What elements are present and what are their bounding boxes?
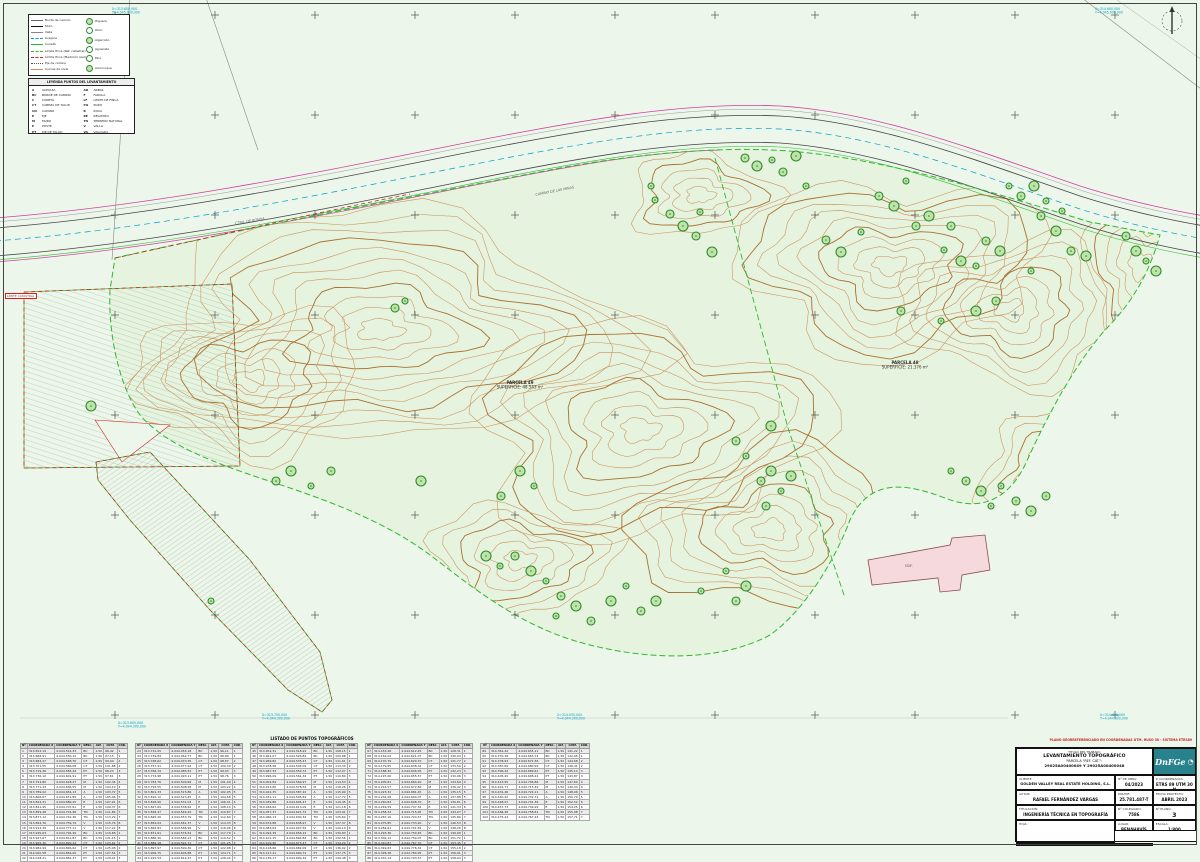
plan-number: 3 <box>1156 812 1193 819</box>
table-cell: 136,42 <box>449 784 463 789</box>
legend-line-label: Valla <box>45 31 52 34</box>
table-cell: 110,80 <box>334 774 348 779</box>
tree-symbol <box>822 236 830 244</box>
table-row: 72314.197,064.044.655,57PT1,50130,963 <box>366 774 473 779</box>
table-row: 82314.284,614.044.741,82V1,50148,268 <box>366 825 473 830</box>
tree-symbol <box>1042 492 1050 500</box>
table-row: 84314.302,124.044.759,07BC1,50151,721 <box>366 835 473 840</box>
table-cell: 157,71 <box>566 815 580 820</box>
legend-tree-label: Pino <box>95 57 101 60</box>
location-name: BENAHAVÍS <box>1118 827 1150 832</box>
coordinate-label: X=313.750,000Y=4.044.300,000 <box>262 713 290 721</box>
table-cell: 148,26 <box>449 825 463 830</box>
table-cell: 121,18 <box>334 805 348 810</box>
coordinate-system-cell: P. COORDENADAS: ETRS 89 UTM 30 N <box>1153 775 1196 790</box>
table-cell: 114,53 <box>334 779 348 784</box>
table-cell: 122,98 <box>219 846 233 851</box>
table-row: 42313.897,974.044.599,30CT1,50122,982 <box>136 846 243 851</box>
tree-symbol <box>497 563 503 569</box>
table-row: 41313.889,184.044.591,71CT1,50121,252 <box>136 841 243 846</box>
table-cell: 119,45 <box>334 800 348 805</box>
table-cell: 132,23 <box>449 769 463 774</box>
table-cell: 155,98 <box>566 810 580 815</box>
table-cell: 4.044.614,47 <box>170 856 197 861</box>
work-number-cell: Nº DE OBRA: 04/2023 <box>1115 775 1153 790</box>
tree-symbol <box>752 161 762 171</box>
tree-symbol <box>1151 266 1161 276</box>
table-row: 44313.915,544.044.614,47PT1,50126,443 <box>136 856 243 861</box>
point-table-header: CÓD. <box>579 744 590 749</box>
table-row: 18313.947,674.044.811,87BC1,50121,151 <box>21 835 128 840</box>
table-row: 96314.422,714.044.715,49M1,50149,334 <box>481 784 590 789</box>
tree-symbol <box>1017 192 1025 200</box>
tree-symbol <box>208 598 214 604</box>
client-cell: CLIENTE: GOLDEN VALLEY REAL ESTATE HOLDI… <box>1016 775 1115 790</box>
sheet-number-cell: HOJA: <box>1016 820 1115 843</box>
degree-name: INGENIERÍA TÉCNICA EN TOPOGRAFÍA <box>1019 812 1112 817</box>
table-cell: 134,69 <box>449 779 463 784</box>
table-row: 68314.162,044.044.621,07BC1,50130,041 <box>366 753 473 758</box>
company-logo: DnFGe ◔ <box>1153 748 1196 775</box>
point-table-header: DESC. <box>197 744 209 749</box>
tree-symbol <box>648 183 654 189</box>
table-cell: 130,04 <box>449 753 463 758</box>
table-row: 14313.877,124.044.742,36TN1,50113,297 <box>21 815 128 820</box>
table-cell: 105,46 <box>104 794 118 799</box>
table-row: 88314.337,144.044.793,57PT1,50158,643 <box>366 856 473 861</box>
table-cell: 145,80 <box>449 815 463 820</box>
tree-symbol <box>1037 212 1045 220</box>
point-table-header: CÓD. <box>462 744 473 749</box>
legend-line-label: Cuneta <box>45 43 56 46</box>
coordinate-label: X=314.600,000Y=4.045.000,000 <box>1095 7 1123 15</box>
table-row: 64314.118,664.044.682,09CT1,50136,022 <box>251 846 358 851</box>
point-table-header: COORDENADA Y <box>170 744 197 749</box>
table-cell: 119,68 <box>104 830 118 835</box>
table-cell: 111,61 <box>334 759 348 764</box>
fence-line-sample <box>31 32 43 33</box>
tree-symbol <box>543 578 549 584</box>
table-row: 102314.475,244.044.767,24TN1,50157,717 <box>481 815 590 820</box>
table-cell: 109,37 <box>104 805 118 810</box>
table-row: 62314.101,154.044.664,84BC1,50132,561 <box>251 835 358 840</box>
table-row: 51314.004,844.044.569,97M1,50114,534 <box>251 779 358 784</box>
table-row: 15313.894,764.044.759,74V1,50115,768 <box>21 820 128 825</box>
table-row: 20313.982,944.044.846,62CT1,50125,082 <box>21 846 128 851</box>
tree-symbol <box>698 588 704 594</box>
table-cell: 132,56 <box>334 835 348 840</box>
abbrev-item: PTPIE DE TALUD <box>32 130 80 135</box>
table-cell: 101,49 <box>219 779 233 784</box>
abbreviations-grid: AACEQUIAARÁRBOLBCBORDE DE CAMINOFFAROLAC… <box>29 86 134 136</box>
tree-symbol <box>1026 506 1036 516</box>
tree-symbol <box>769 157 775 163</box>
table-cell: TN <box>544 815 556 820</box>
table-row: 8313.771,434.044.636,55M1,50104,194 <box>21 784 128 789</box>
table-cell: 110,87 <box>219 810 233 815</box>
cadastral-limit-note: LÍMITE CATASTRAL <box>5 293 37 299</box>
table-cell: 129,01 <box>104 856 118 861</box>
table-cell: 121,25 <box>219 841 233 846</box>
table-row: 48313.978,584.044.544,09CT1,50113,342 <box>251 764 358 769</box>
table-cell: 148,06 <box>566 789 580 794</box>
tree-symbol <box>707 247 717 257</box>
tree-symbol <box>962 477 970 485</box>
tree-symbol <box>606 596 616 606</box>
legend-line-item: Eje de camino <box>31 62 86 65</box>
dni-value: 25.781.487-T <box>1118 797 1150 802</box>
tree-symbol <box>971 306 981 316</box>
table-cell: 117,72 <box>334 794 348 799</box>
table-cell: 314.475,24 <box>489 815 516 820</box>
wall-line-sample <box>31 26 43 27</box>
table-row: 70314.179,554.044.638,32CT1,50133,502 <box>366 764 473 769</box>
point-table: NºCOORDENADA XCOORDENADA YDESC.ALT.COTAC… <box>365 743 473 862</box>
abbrev-item: VAVAGUADA <box>84 130 132 135</box>
tree-symbol <box>858 229 864 235</box>
table-row: 13313.859,484.044.724,98TN1,50111,847 <box>21 810 128 815</box>
point-table-header: COORDENADA Y <box>285 744 312 749</box>
legend-line-label: Acequia <box>45 37 57 40</box>
table-row: 30313.792,554.044.508,28M1,50103,224 <box>136 784 243 789</box>
legend-tree-label: Aguacate <box>95 48 109 51</box>
table-cell: 114,33 <box>219 820 233 825</box>
table-cell: 124,71 <box>219 851 233 856</box>
abbreviations-box: LEYENDA PUNTOS DEL LEVANTAMIENTO AACEQUI… <box>28 78 135 134</box>
table-row: 3313.684,274.044.548,76CT1,5099,042 <box>21 759 128 764</box>
table-row: 98314.440,224.044.732,74A1,50150,795 <box>481 794 590 799</box>
table-cell: 143,87 <box>566 774 580 779</box>
legend-box: Borde de caminoMuroVallaAcequiaCunetaLím… <box>28 14 130 76</box>
point-table: NºCOORDENADA XCOORDENADA YDESC.ALT.COTAC… <box>135 743 243 862</box>
project-date: ABRIL 2023 <box>1156 797 1193 802</box>
table-row: 47313.969,824.044.535,47CT1,50111,612 <box>251 759 358 764</box>
legend-line-item: Muro <box>31 25 86 28</box>
point-table-header: DESC. <box>82 744 94 749</box>
tree-symbol <box>803 183 809 189</box>
table-cell: 3 <box>347 856 358 861</box>
table-cell: 126,44 <box>219 856 233 861</box>
table-row: 16313.912,394.044.777,11V1,50117,228 <box>21 825 128 830</box>
scale-cell: ESCALA: 1:800 <box>1153 820 1196 831</box>
table-cell: 121,15 <box>104 835 118 840</box>
tree-symbol <box>924 211 934 221</box>
table-row: 52314.013,604.044.578,59M1,50116,264 <box>251 784 358 789</box>
coordinate-label: X=313.600,000Y=4.044.300,000 <box>118 721 146 729</box>
point-table-header: COORDENADA X <box>489 744 516 749</box>
tree-symbol <box>1122 232 1130 240</box>
author-name: RAFAEL FERNÁNDEZ VARGAS <box>1019 797 1112 802</box>
table-row: 17313.930,034.044.794,49BC1,50119,681 <box>21 830 128 835</box>
tree-symbol <box>779 168 787 176</box>
table-cell: 141,22 <box>566 748 580 753</box>
table-cell: 156,91 <box>449 851 463 856</box>
table-row: 76314.232,084.044.690,07A1,50137,885 <box>366 794 473 799</box>
table-cell: 116,06 <box>219 825 233 830</box>
table-cell: 88 <box>366 856 373 861</box>
tree-symbol <box>743 453 749 459</box>
table-row: 22314.018,214.044.881,37PT1,50129,013 <box>21 856 128 861</box>
table-cell: 127,54 <box>104 851 118 856</box>
table-row: 27313.766,194.044.485,52PT1,5099,033 <box>136 769 243 774</box>
table-cell: 108,15 <box>334 748 348 753</box>
tree-symbol <box>652 197 658 203</box>
tree-symbol <box>889 201 899 211</box>
coordinate-label: X=314.600,000Y=4.044.300,000 <box>1100 713 1128 721</box>
legend-tree-item: Algarrobo <box>86 37 127 44</box>
table-cell: 150,79 <box>566 794 580 799</box>
table-cell: 106,41 <box>219 800 233 805</box>
table-row: 25313.748,624.044.470,35CT1,5098,572 <box>136 759 243 764</box>
tree-symbol <box>651 596 661 606</box>
road-line-sample <box>31 20 43 21</box>
table-cell: 3 <box>462 856 473 861</box>
point-table-header: CÓD. <box>347 744 358 749</box>
table-cell: 147,60 <box>566 779 580 784</box>
tree-symbol <box>286 466 296 476</box>
scale-value: 1:800 <box>1156 827 1193 832</box>
table-cell: 131,77 <box>449 759 463 764</box>
table-row: 7313.754,804.044.618,27M1,50102,344 <box>21 779 128 784</box>
tree-symbol <box>666 210 674 218</box>
table-row: 61314.092,394.044.656,22BC1,50130,831 <box>251 830 358 835</box>
table-row: 67314.153,284.044.612,45BC1,50128,311 <box>366 748 473 753</box>
table-cell: 4.044.881,37 <box>55 856 82 861</box>
tree-symbol <box>1043 198 1049 204</box>
legend-line-label: Límite finca (Medición real) <box>45 56 86 59</box>
table-cell: 4.044.767,24 <box>517 815 544 820</box>
legend-line-label: Eje de camino <box>45 62 66 65</box>
table-row: 19313.965,304.044.829,24CT1,50123,612 <box>21 841 128 846</box>
table-row: 24313.739,844.044.462,77BC1,5096,841 <box>136 753 243 758</box>
legend-line-item: Cuneta <box>31 43 86 46</box>
table-row: 69314.170,794.044.629,70CT1,50131,772 <box>366 759 473 764</box>
table-row: 38313.862,834.044.568,96V1,50116,068 <box>136 825 243 830</box>
table-row: 2313.668,914.044.530,12BC1,5097,151 <box>21 753 128 758</box>
point-table-header: DESC. <box>544 744 556 749</box>
table-cell: 1,50 <box>94 856 104 861</box>
tree-icon <box>86 37 93 44</box>
tree-symbol <box>1143 258 1149 264</box>
point-table-header: CÓD. <box>117 744 128 749</box>
table-cell: PT <box>197 856 209 861</box>
legend-tree-item: Higuera <box>86 18 127 25</box>
table-row: 80314.267,104.044.724,57TN1,50145,807 <box>366 815 473 820</box>
table-cell: 4.044.699,34 <box>285 856 312 861</box>
table-row: 99314.448,974.044.741,36E1,50152,526 <box>481 800 590 805</box>
table-row: 43313.906,754.044.606,88PT1,50124,713 <box>136 851 243 856</box>
table-cell: 115,76 <box>104 820 118 825</box>
tree-symbol <box>912 222 920 230</box>
table-row: 87314.328,384.044.784,95PT1,50156,913 <box>366 851 473 856</box>
table-row: 36313.845,264.044.553,79TN1,50112,607 <box>136 815 243 820</box>
table-cell: 117,22 <box>104 825 118 830</box>
table-row: 33313.818,904.044.531,03E1,50106,416 <box>136 800 243 805</box>
table-cell: 1,50 <box>439 856 449 861</box>
job-title-cell: TÍTULO DEL TRABAJO: LEVANTAMIENTO TOPOGR… <box>1016 748 1153 775</box>
table-row: 54314.031,114.044.595,84A1,50117,725 <box>251 794 358 799</box>
table-row: 49313.987,334.044.552,72PT1,50112,073 <box>251 769 358 774</box>
table-cell: 102 <box>481 815 490 820</box>
table-cell: 4.044.793,57 <box>400 856 427 861</box>
table-cell: 1,50 <box>209 856 219 861</box>
abbreviations-title: LEYENDA PUNTOS DEL LEVANTAMIENTO <box>29 79 134 86</box>
tree-symbol <box>723 568 729 574</box>
point-table-header: COORDENADA X <box>142 744 169 749</box>
legend-tree-item: Alcornoque <box>86 65 127 72</box>
table-cell: 112,07 <box>334 769 348 774</box>
legend-line-item: Valla <box>31 31 86 34</box>
table-cell: PT <box>427 856 439 861</box>
tree-icon <box>86 55 93 62</box>
table-cell: 146,53 <box>449 820 463 825</box>
table-cell: 130,83 <box>334 830 348 835</box>
table-cell: 133,50 <box>449 764 463 769</box>
table-row: 65314.127,414.044.690,72PT1,50137,753 <box>251 851 358 856</box>
legend-tree-item: Olivo <box>86 27 127 34</box>
legend-line-label: Muro <box>45 25 53 28</box>
tree-symbol <box>982 237 990 245</box>
legend-tree-label: Alcornoque <box>95 67 112 70</box>
table-row: 78314.249,594.044.707,32E1,50141,346 <box>366 805 473 810</box>
table-cell: 111,84 <box>104 810 118 815</box>
legend-line-item: Curvas de nivel <box>31 68 86 71</box>
building-label: EDIF. <box>905 564 913 568</box>
table-row: 28313.774,984.044.493,11PT1,5098,763 <box>136 774 243 779</box>
table-cell: 127,37 <box>334 820 348 825</box>
tree-symbol <box>897 307 905 315</box>
tree-symbol <box>762 502 770 510</box>
table-cell: 103,22 <box>219 784 233 789</box>
point-table-header: COORDENADA X <box>257 744 284 749</box>
legend-tree-item: Aguacate <box>86 46 127 53</box>
tree-symbol <box>976 486 986 496</box>
table-row: 56314.048,624.044.613,09E1,50121,186 <box>251 805 358 810</box>
table-cell: 149,99 <box>449 830 463 835</box>
table-cell: 146,41 <box>566 764 580 769</box>
cat-line-sample <box>31 51 43 52</box>
tree-symbol <box>988 503 994 509</box>
legend-line-item: Acequia <box>31 37 86 40</box>
degree-cell: TITULACIÓN: INGENIERÍA TÉCNICA EN TOPOGR… <box>1016 805 1115 820</box>
topographic-map: X=313.600,000Y=4.045.000,000X=314.600,00… <box>0 0 1200 848</box>
table-cell: 151,72 <box>449 835 463 840</box>
table-row: 73314.205,814.044.664,20M1,50134,694 <box>366 779 473 784</box>
table-row: 81314.275,854.044.733,20V1,50146,538 <box>366 820 473 825</box>
tree-symbol <box>947 222 955 230</box>
tree-symbol <box>511 552 519 560</box>
tree-symbol <box>308 483 314 489</box>
legend-line-item: Borde de camino <box>31 19 86 22</box>
tree-symbol <box>587 617 595 625</box>
table-row: 12313.841,954.044.707,61E1,50109,376 <box>21 805 128 810</box>
author-cell: AUTOR: RAFAEL FERNÁNDEZ VARGAS <box>1016 790 1115 805</box>
table-row: 93314.396,444.044.689,61PT1,50145,143 <box>481 769 590 774</box>
tree-symbol <box>272 477 280 485</box>
tree-icon <box>86 46 93 53</box>
tree-symbol <box>1012 497 1020 505</box>
point-table-header: DESC. <box>312 744 324 749</box>
table-cell: 44 <box>136 856 143 861</box>
point-table: NºCOORDENADA XCOORDENADA YDESC.ALT.COTAC… <box>250 743 358 862</box>
acequia-line-sample <box>31 38 43 39</box>
tree-symbol <box>766 466 776 476</box>
tree-icon <box>86 65 93 72</box>
table-row: 63314.109,904.044.673,47CT1,50134,292 <box>251 841 358 846</box>
table-row: 58314.066,134.044.630,34TN1,50125,647 <box>251 815 358 820</box>
cadastral-refs: 29025A00400049 Y 29025A00400048 <box>1019 763 1150 768</box>
tree-symbol <box>515 466 525 476</box>
logo-text: DnFGe <box>1155 757 1185 767</box>
tree-symbol <box>941 247 947 253</box>
table-row: 29313.783,764.044.500,69M1,50101,494 <box>136 779 243 784</box>
table-cell: 1,50 <box>324 856 334 861</box>
eje-line-sample <box>31 63 43 64</box>
tree-symbol <box>1029 181 1039 191</box>
table-cell: 22 <box>21 856 28 861</box>
point-table: NºCOORDENADA XCOORDENADA YDESC.ALT.COTAC… <box>20 743 128 862</box>
georeference-note: PLANO GEORREFERENCIADO EN COORDENADAS UT… <box>1050 738 1192 742</box>
table-row: 39313.871,614.044.576,54BC1,50117,791 <box>136 830 243 835</box>
table-cell: 113,29 <box>104 815 118 820</box>
tree-symbol <box>557 592 565 600</box>
tree-symbol <box>637 607 645 615</box>
table-row: 6313.736,124.044.601,91PT1,5097,613 <box>21 774 128 779</box>
tree-symbol <box>973 263 979 269</box>
tree-symbol <box>778 488 784 494</box>
table-row: 95314.413,954.044.706,86M1,50147,604 <box>481 779 590 784</box>
table-row: 100314.457,734.044.749,99E1,50154,256 <box>481 805 590 810</box>
table-row: 59314.074,884.044.638,97V1,50127,378 <box>251 820 358 825</box>
tree-symbol <box>1006 183 1012 189</box>
table-cell: 112,60 <box>219 815 233 820</box>
table-cell: 102,95 <box>219 789 233 794</box>
tree-symbol <box>732 437 740 445</box>
table-cell: 154,25 <box>566 805 580 810</box>
table-cell: 125,64 <box>334 815 348 820</box>
table-cell: 66 <box>251 856 258 861</box>
table-row: 23313.731,054.044.455,18BC1,5096,111 <box>136 748 243 753</box>
point-table-header: COORDENADA Y <box>517 744 544 749</box>
table-cell: 119,52 <box>219 835 233 840</box>
table-cell: 143,07 <box>449 810 463 815</box>
table-row: 34313.827,694.044.538,62E1,50108,146 <box>136 805 243 810</box>
tree-symbol <box>903 178 909 184</box>
table-cell: 108,14 <box>219 805 233 810</box>
table-cell: 135,15 <box>449 789 463 794</box>
table-cell: 155,18 <box>449 846 463 851</box>
tree-symbol <box>741 154 749 162</box>
table-row: 53314.022,354.044.587,22A1,50115,995 <box>251 789 358 794</box>
table-cell: 100,30 <box>219 764 233 769</box>
table-row: 31313.801,334.044.515,86A1,50102,955 <box>136 789 243 794</box>
table-row: 45313.952,314.044.518,22BC1,50108,151 <box>251 748 358 753</box>
tree-symbol <box>992 297 1000 305</box>
table-row: 9313.789,024.044.654,13A1,50103,725 <box>21 789 128 794</box>
table-row: 92314.387,694.044.680,99CT1,50146,412 <box>481 764 590 769</box>
work-number: 04/2023 <box>1118 782 1150 787</box>
table-row: 77314.240,834.044.698,70E1,50139,616 <box>366 800 473 805</box>
table-row: 46313.961,074.044.526,84BC1,50109,881 <box>251 753 358 758</box>
tree-symbol <box>995 246 1005 256</box>
tree-symbol <box>623 583 629 589</box>
tree-symbol <box>571 601 581 611</box>
coordinate-system: ETRS 89 UTM 30 N <box>1156 782 1193 791</box>
table-row: 32313.810,124.044.523,45A1,50104,685 <box>136 794 243 799</box>
table-cell: 130,96 <box>449 774 463 779</box>
table-row: 4313.701,554.044.566,08CT1,50101,882 <box>21 764 128 769</box>
coordinate-label: X=314.050,000Y=4.044.300,000 <box>557 713 585 721</box>
